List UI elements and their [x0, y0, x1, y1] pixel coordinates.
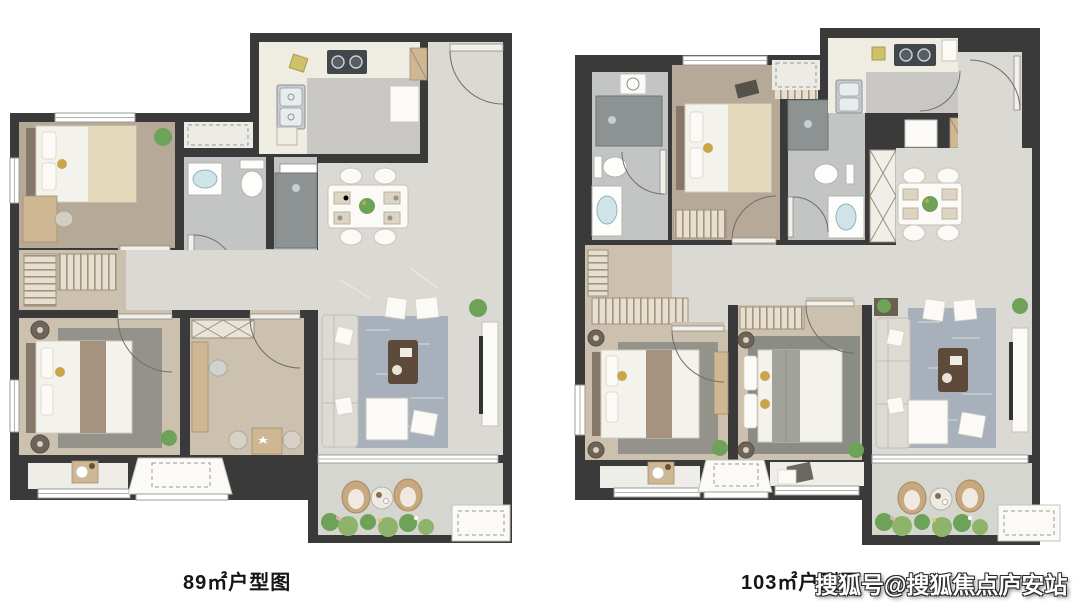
toilet-icon [240, 160, 264, 197]
planter-box [998, 505, 1060, 541]
planter-box [452, 505, 510, 541]
balcony-89 [318, 455, 510, 541]
fridge-icon [390, 86, 419, 122]
balcony-table-icon [930, 488, 952, 510]
sliding-door [872, 455, 1028, 463]
dining-chair-icon [903, 225, 925, 241]
wardrobe-icon [674, 210, 726, 238]
desk-icon [23, 196, 57, 242]
plant-icon [469, 299, 487, 317]
shower-icon [596, 96, 662, 146]
centerpiece-plant-icon [922, 196, 938, 212]
cutting-board-icon [872, 47, 885, 60]
storage-rack-icon [58, 254, 116, 290]
side-table-icon [874, 298, 898, 316]
caption-plan-89: 89㎡户型图 [183, 566, 291, 595]
bedroom-2-103 [672, 56, 780, 248]
window [10, 380, 19, 432]
plant-icon [154, 128, 172, 146]
window [55, 113, 135, 122]
entry-door [450, 44, 503, 51]
storage-nook-89 [184, 122, 253, 148]
plant-icon [161, 430, 177, 446]
ottoman-icon [366, 398, 408, 440]
single-bed-icon [676, 104, 771, 192]
floor-plan-89 [10, 33, 512, 543]
stool-icon [283, 431, 301, 449]
watermark: 搜狐号@搜狐焦点庐安站 [815, 566, 1067, 600]
kitchen-sink-icon [836, 80, 862, 113]
storage-rack-icon [592, 298, 688, 324]
desk-icon [192, 342, 208, 432]
dining-chair-icon [937, 168, 959, 184]
plant-icon [1012, 298, 1028, 314]
wardrobe-icon [740, 307, 804, 329]
desk-chair-icon [209, 360, 227, 376]
double-bed-icon [26, 341, 132, 433]
bathroom-sink-icon [592, 186, 622, 236]
bathroom-1-103 [592, 72, 668, 240]
washing-machine-icon [620, 74, 646, 94]
dining-chair-icon [374, 229, 396, 245]
bathroom-2-103 [788, 100, 865, 240]
stove-icon [894, 44, 936, 66]
tv-console-icon [479, 322, 498, 426]
play-table-icon [252, 428, 282, 454]
balcony-table-icon [371, 487, 393, 509]
balcony-103 [872, 455, 1060, 541]
floor-plans-image: 89㎡户型图 103㎡户型图 搜狐号@搜狐焦点庐安站 [0, 0, 1080, 610]
centerpiece-plant-icon [359, 198, 375, 214]
kitchen-cabinet [942, 40, 957, 61]
floor-plan-103 [575, 28, 1060, 545]
sofa-icon [322, 315, 358, 447]
bathroom-door [788, 197, 793, 237]
shoe-rack-icon [588, 250, 608, 296]
plant-icon [712, 440, 728, 456]
storage-nook-103 [772, 60, 820, 99]
tea-table-icon [72, 461, 98, 483]
dining-chair-icon [374, 168, 396, 184]
shower-icon [275, 173, 317, 248]
double-bed-icon [744, 350, 842, 442]
window [614, 488, 700, 497]
sliding-door [318, 455, 498, 463]
bathroom-door [660, 150, 666, 194]
single-bed-icon [26, 126, 136, 202]
dining-chair-icon [903, 168, 925, 184]
coffee-table-icon [388, 340, 418, 384]
protruding-bay-window [128, 458, 232, 500]
coffee-table-icon [938, 348, 968, 392]
desk-chair-icon [55, 211, 73, 227]
toilet-icon [814, 164, 854, 184]
bathroom-sink-icon [188, 163, 222, 195]
stove-icon [327, 50, 367, 74]
double-bed-icon [592, 350, 699, 438]
toilet-icon [594, 156, 627, 178]
bathroom-sink-icon [828, 196, 864, 238]
window [683, 56, 767, 65]
plant-icon [848, 442, 864, 458]
stool-icon [229, 431, 247, 449]
shoe-rack-icon [24, 254, 56, 306]
ottoman-icon [908, 400, 948, 444]
window [775, 486, 859, 495]
desk-icon [714, 352, 728, 414]
kitchen-89 [259, 42, 420, 154]
closet-103 [870, 150, 896, 242]
dining-chair-icon [340, 229, 362, 245]
window [10, 158, 19, 203]
tv-console-icon [1009, 328, 1028, 432]
window [38, 489, 130, 498]
fridge-icon [905, 120, 937, 147]
window [575, 385, 585, 435]
sofa-icon [876, 318, 910, 448]
protruding-bay-window [698, 460, 772, 498]
kitchen-sink-icon [277, 85, 305, 129]
dining-chair-icon [340, 168, 362, 184]
kitchen-cabinet [277, 127, 297, 145]
dining-chair-icon [937, 225, 959, 241]
wardrobe-icon [192, 320, 254, 338]
tea-table-icon [648, 462, 674, 484]
floor-plans-canvas [0, 0, 1080, 610]
